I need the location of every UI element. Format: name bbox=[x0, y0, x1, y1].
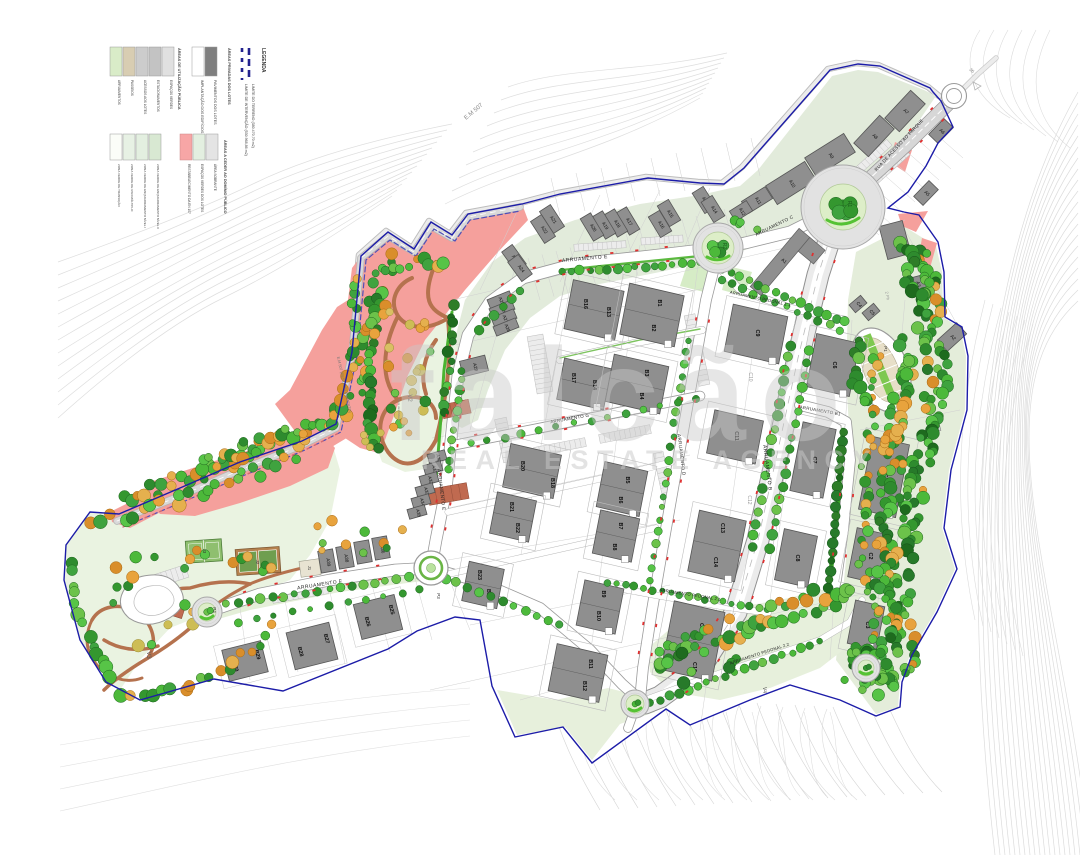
svg-text:ACESSOS AOS LOTES: ACESSOS AOS LOTES bbox=[143, 80, 147, 114]
svg-text:B22: B22 bbox=[514, 523, 520, 533]
svg-text:V4: V4 bbox=[761, 687, 767, 693]
svg-text:B13: B13 bbox=[605, 307, 611, 317]
svg-text:P3: P3 bbox=[436, 593, 441, 599]
svg-text:C8: C8 bbox=[794, 555, 800, 562]
svg-text:B8: B8 bbox=[611, 544, 617, 551]
svg-text:ARRUAMENTOS: ARRUAMENTOS bbox=[117, 80, 121, 105]
svg-text:PASSEIOS: PASSEIOS bbox=[130, 80, 134, 96]
svg-text:J2: J2 bbox=[255, 560, 260, 565]
svg-text:B12: B12 bbox=[581, 681, 587, 691]
svg-text:ESPAÇOS VERDES: ESPAÇOS VERDES bbox=[169, 80, 173, 109]
svg-text:B21: B21 bbox=[508, 502, 514, 512]
svg-text:B23: B23 bbox=[476, 570, 482, 580]
svg-text:B9: B9 bbox=[600, 591, 606, 598]
svg-text:B11: B11 bbox=[587, 659, 593, 669]
svg-text:PAVIMENTOS DOS LOTES: PAVIMENTOS DOS LOTES bbox=[213, 80, 217, 125]
svg-text:LIMITE DE INTERVENÇÃO (530.968: LIMITE DE INTERVENÇÃO (530.968,86 m2) bbox=[244, 84, 249, 156]
svg-text:R2: R2 bbox=[721, 243, 727, 250]
svg-text:P4: P4 bbox=[212, 607, 217, 613]
svg-text:R1: R1 bbox=[846, 201, 852, 208]
svg-text:RESTABELECIMENTO DA EN 107: RESTABELECIMENTO DA EN 107 bbox=[187, 164, 191, 214]
svg-text:IMPLANTAÇÃO DOS EDIFÍCIOS: IMPLANTAÇÃO DOS EDIFÍCIOS bbox=[200, 80, 205, 134]
svg-text:ZONA VERDE DE USO MÚLTIPLO: ZONA VERDE DE USO MÚLTIPLO bbox=[130, 164, 135, 212]
svg-text:REAL ESTATE AGENCY: REAL ESTATE AGENCY bbox=[421, 445, 879, 475]
svg-text:ÁREAS A CEDER AO DOMÍNIO PÚBLI: ÁREAS A CEDER AO DOMÍNIO PÚBLICO bbox=[223, 140, 228, 214]
svg-text:ZONA VERDE DE TRANSIÇÃO: ZONA VERDE DE TRANSIÇÃO bbox=[117, 164, 122, 207]
svg-text:ZONA VERDE DE ENQUADRAMENTO NÍ: ZONA VERDE DE ENQUADRAMENTO NÍVEL I bbox=[143, 164, 147, 228]
svg-text:V3: V3 bbox=[145, 651, 151, 659]
svg-text:B7: B7 bbox=[617, 523, 623, 530]
svg-text:C13: C13 bbox=[719, 523, 725, 533]
svg-text:B10: B10 bbox=[595, 611, 601, 621]
svg-text:C2: C2 bbox=[867, 553, 873, 560]
svg-text:ÁREA SOBRANTE: ÁREA SOBRANTE bbox=[213, 164, 217, 191]
svg-text:ÁREAS DE UTILIZAÇÃO PÚBLICA: ÁREAS DE UTILIZAÇÃO PÚBLICA bbox=[177, 48, 182, 110]
svg-text:LEGENDA: LEGENDA bbox=[260, 48, 266, 73]
svg-text:B6: B6 bbox=[617, 497, 623, 504]
svg-text:J1: J1 bbox=[307, 566, 312, 571]
svg-text:C14: C14 bbox=[712, 557, 718, 567]
svg-text:P1: P1 bbox=[883, 346, 888, 352]
svg-text:ESPAÇOS VERDES DOS LOTES: ESPAÇOS VERDES DOS LOTES bbox=[200, 164, 204, 212]
svg-text:B1: B1 bbox=[656, 300, 662, 307]
svg-text:LIMITE DO TERRENO (380.470,70: LIMITE DO TERRENO (380.470,70 m2) bbox=[251, 84, 255, 148]
svg-text:B18: B18 bbox=[549, 478, 555, 488]
svg-text:B5: B5 bbox=[624, 477, 630, 484]
svg-text:B16: B16 bbox=[582, 299, 588, 309]
svg-text:ESTACIONAMENTOS: ESTACIONAMENTOS bbox=[156, 80, 160, 112]
svg-text:ÁREAS PRIVADAS DOS LOTES: ÁREAS PRIVADAS DOS LOTES bbox=[227, 48, 232, 105]
svg-text:C12: C12 bbox=[746, 495, 752, 504]
svg-text:ZONA VERDE DE ENQUADRAMENTO NÍ: ZONA VERDE DE ENQUADRAMENTO NÍVEL II bbox=[156, 164, 160, 229]
svg-text:J3: J3 bbox=[202, 549, 207, 554]
